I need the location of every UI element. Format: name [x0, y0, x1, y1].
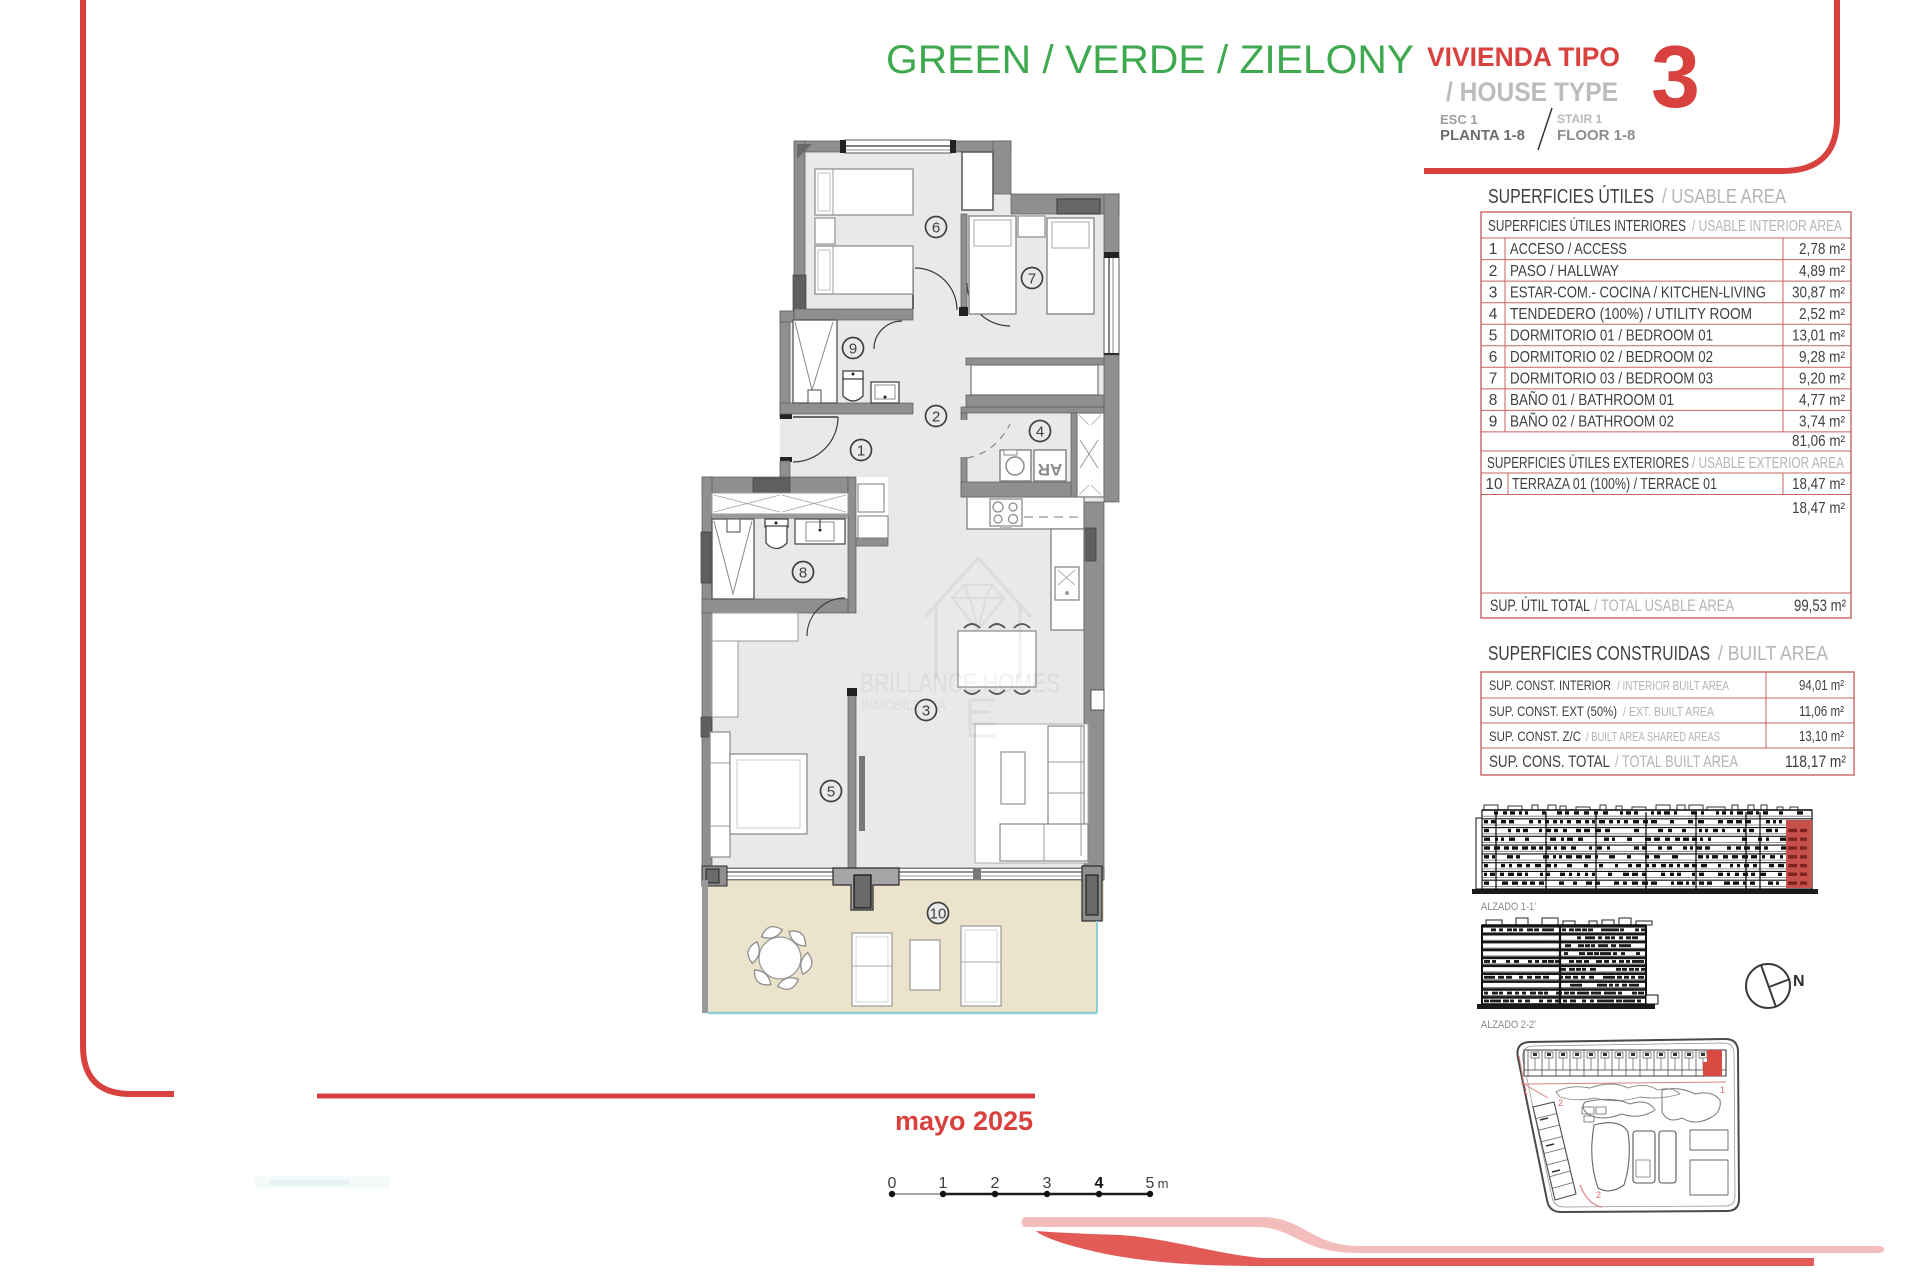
svg-text:0: 0	[888, 1175, 897, 1192]
svg-text:5: 5	[1489, 327, 1498, 344]
svg-text:SUPERFICIES ÚTILES INTERIORES: SUPERFICIES ÚTILES INTERIORES	[1488, 218, 1686, 235]
svg-text:3: 3	[922, 703, 930, 720]
svg-text:1: 1	[857, 443, 865, 460]
svg-text:mayo 2025: mayo 2025	[895, 1106, 1033, 1136]
svg-text:/ USABLE AREA: / USABLE AREA	[1662, 186, 1787, 208]
svg-text:4: 4	[1036, 424, 1044, 441]
svg-text:SUP. ÚTIL TOTAL: SUP. ÚTIL TOTAL	[1490, 596, 1590, 615]
svg-text:/ TOTAL BUILT AREA: / TOTAL BUILT AREA	[1615, 752, 1738, 771]
svg-text:94,01 m²: 94,01 m²	[1799, 678, 1844, 694]
svg-text:TENDEDERO (100%) / UTILITY ROO: TENDEDERO (100%) / UTILITY ROOM	[1510, 306, 1752, 323]
svg-text:PLANTA 1-8: PLANTA 1-8	[1440, 127, 1525, 144]
svg-text:5: 5	[827, 784, 835, 801]
svg-text:4,77 m²: 4,77 m²	[1799, 392, 1845, 409]
svg-text:10: 10	[930, 906, 947, 923]
svg-text:DORMITORIO 03 / BEDROOM 03: DORMITORIO 03 / BEDROOM 03	[1510, 371, 1713, 388]
svg-text:/ INTERIOR BUILT AREA: / INTERIOR BUILT AREA	[1617, 678, 1729, 693]
svg-text:1: 1	[939, 1175, 948, 1192]
svg-text:AR: AR	[1038, 460, 1063, 479]
svg-text:81,06 m²: 81,06 m²	[1792, 433, 1845, 450]
svg-text:3,74 m²: 3,74 m²	[1799, 414, 1845, 431]
svg-text:ALZADO 1-1': ALZADO 1-1'	[1481, 901, 1536, 913]
svg-text:SUP. CONST. INTERIOR: SUP. CONST. INTERIOR	[1489, 677, 1611, 693]
svg-text:9: 9	[1489, 414, 1498, 431]
svg-text:18,47 m²: 18,47 m²	[1792, 476, 1845, 493]
svg-text:7: 7	[1028, 271, 1036, 288]
svg-text:/ TOTAL USABLE AREA: / TOTAL USABLE AREA	[1594, 596, 1734, 615]
svg-text:1: 1	[1489, 241, 1498, 258]
svg-text:6: 6	[932, 220, 940, 237]
svg-text:10: 10	[1485, 476, 1503, 493]
svg-text:4: 4	[1095, 1175, 1104, 1192]
svg-text:99,53 m²: 99,53 m²	[1794, 596, 1846, 615]
svg-text:PASO / HALLWAY: PASO / HALLWAY	[1510, 263, 1619, 280]
svg-text:SUPERFICIES ÚTILES EXTERIORES: SUPERFICIES ÚTILES EXTERIORES	[1487, 455, 1689, 472]
svg-text:2,52 m²: 2,52 m²	[1799, 306, 1845, 323]
svg-text:/ HOUSE TYPE: / HOUSE TYPE	[1446, 77, 1618, 107]
svg-text:SUP. CONST. Z/C: SUP. CONST. Z/C	[1489, 728, 1581, 744]
svg-text:BAÑO 02 / BATHROOM 02: BAÑO 02 / BATHROOM 02	[1510, 414, 1674, 431]
svg-text:SUPERFICIES CONSTRUIDAS: SUPERFICIES CONSTRUIDAS	[1488, 643, 1710, 665]
svg-text:2,78 m²: 2,78 m²	[1799, 241, 1845, 258]
svg-text:DORMITORIO 02 / BEDROOM 02: DORMITORIO 02 / BEDROOM 02	[1510, 349, 1713, 366]
svg-text:/ BUILT AREA: / BUILT AREA	[1718, 643, 1829, 665]
svg-text:9: 9	[849, 341, 857, 358]
svg-text:ALZADO 2-2': ALZADO 2-2'	[1481, 1019, 1536, 1031]
svg-text:13,01 m²: 13,01 m²	[1792, 327, 1845, 344]
svg-text:SUP. CONST. EXT (50%): SUP. CONST. EXT (50%)	[1489, 703, 1617, 719]
svg-text:DORMITORIO 01 / BEDROOM 01: DORMITORIO 01 / BEDROOM 01	[1510, 327, 1713, 344]
svg-text:4: 4	[1489, 306, 1498, 323]
svg-text:N: N	[1793, 973, 1805, 990]
svg-text:13,10 m²: 13,10 m²	[1799, 729, 1844, 745]
svg-text:1: 1	[1523, 1086, 1528, 1096]
svg-text:11,06 m²: 11,06 m²	[1799, 704, 1844, 720]
svg-text:ESTAR-COM.- COCINA / KITCHEN-L: ESTAR-COM.- COCINA / KITCHEN-LIVING	[1510, 284, 1766, 301]
svg-text:ACCESO / ACCESS: ACCESO / ACCESS	[1510, 241, 1627, 258]
svg-text:/ EXT. BUILT AREA: / EXT. BUILT AREA	[1623, 704, 1714, 719]
svg-text:3: 3	[1489, 284, 1498, 301]
svg-text:3: 3	[1651, 27, 1700, 126]
svg-text:5: 5	[1146, 1175, 1155, 1192]
svg-text:30,87 m²: 30,87 m²	[1792, 284, 1845, 301]
svg-text:2: 2	[1596, 1190, 1601, 1200]
svg-text:BRILLANCE HOMES: BRILLANCE HOMES	[860, 668, 1060, 698]
svg-text:FLOOR 1-8: FLOOR 1-8	[1557, 127, 1635, 144]
svg-text:2: 2	[1489, 263, 1498, 280]
svg-text:SUPERFICIES ÚTILES: SUPERFICIES ÚTILES	[1488, 185, 1654, 208]
svg-text:8: 8	[1489, 392, 1498, 409]
svg-text:SUP. CONS. TOTAL: SUP. CONS. TOTAL	[1489, 752, 1610, 771]
svg-text:STAIR 1: STAIR 1	[1557, 112, 1602, 126]
svg-text:ESC 1: ESC 1	[1440, 112, 1478, 127]
svg-text:9,28 m²: 9,28 m²	[1799, 349, 1845, 366]
svg-text:2: 2	[1558, 1098, 1563, 1108]
svg-text:2: 2	[932, 409, 940, 426]
svg-text:GREEN / VERDE / ZIELONY: GREEN / VERDE / ZIELONY	[886, 38, 1414, 82]
svg-text:3: 3	[1043, 1175, 1052, 1192]
svg-text:/ BUILT AREA SHARED AREAS: / BUILT AREA SHARED AREAS	[1586, 729, 1720, 744]
svg-text:m: m	[1158, 1176, 1169, 1191]
svg-text:BAÑO 01 / BATHROOM 01: BAÑO 01 / BATHROOM 01	[1510, 392, 1674, 409]
svg-text:18,47 m²: 18,47 m²	[1792, 500, 1845, 517]
svg-text:/ USABLE INTERIOR AREA: / USABLE INTERIOR AREA	[1692, 218, 1843, 235]
svg-text:4,89 m²: 4,89 m²	[1799, 263, 1845, 280]
svg-text:118,17 m²: 118,17 m²	[1785, 752, 1846, 771]
svg-text:/ USABLE EXTERIOR AREA: / USABLE EXTERIOR AREA	[1692, 455, 1845, 472]
svg-text:2: 2	[991, 1175, 1000, 1192]
svg-text:VIVIENDA TIPO: VIVIENDA TIPO	[1427, 42, 1620, 72]
svg-text:1: 1	[1720, 1085, 1725, 1095]
svg-text:9,20 m²: 9,20 m²	[1799, 371, 1845, 388]
svg-text:8: 8	[799, 565, 807, 582]
svg-text:TERRAZA 01 (100%) / TERRACE 01: TERRAZA 01 (100%) / TERRACE 01	[1512, 476, 1717, 493]
svg-text:7: 7	[1489, 371, 1498, 388]
svg-text:6: 6	[1489, 349, 1498, 366]
